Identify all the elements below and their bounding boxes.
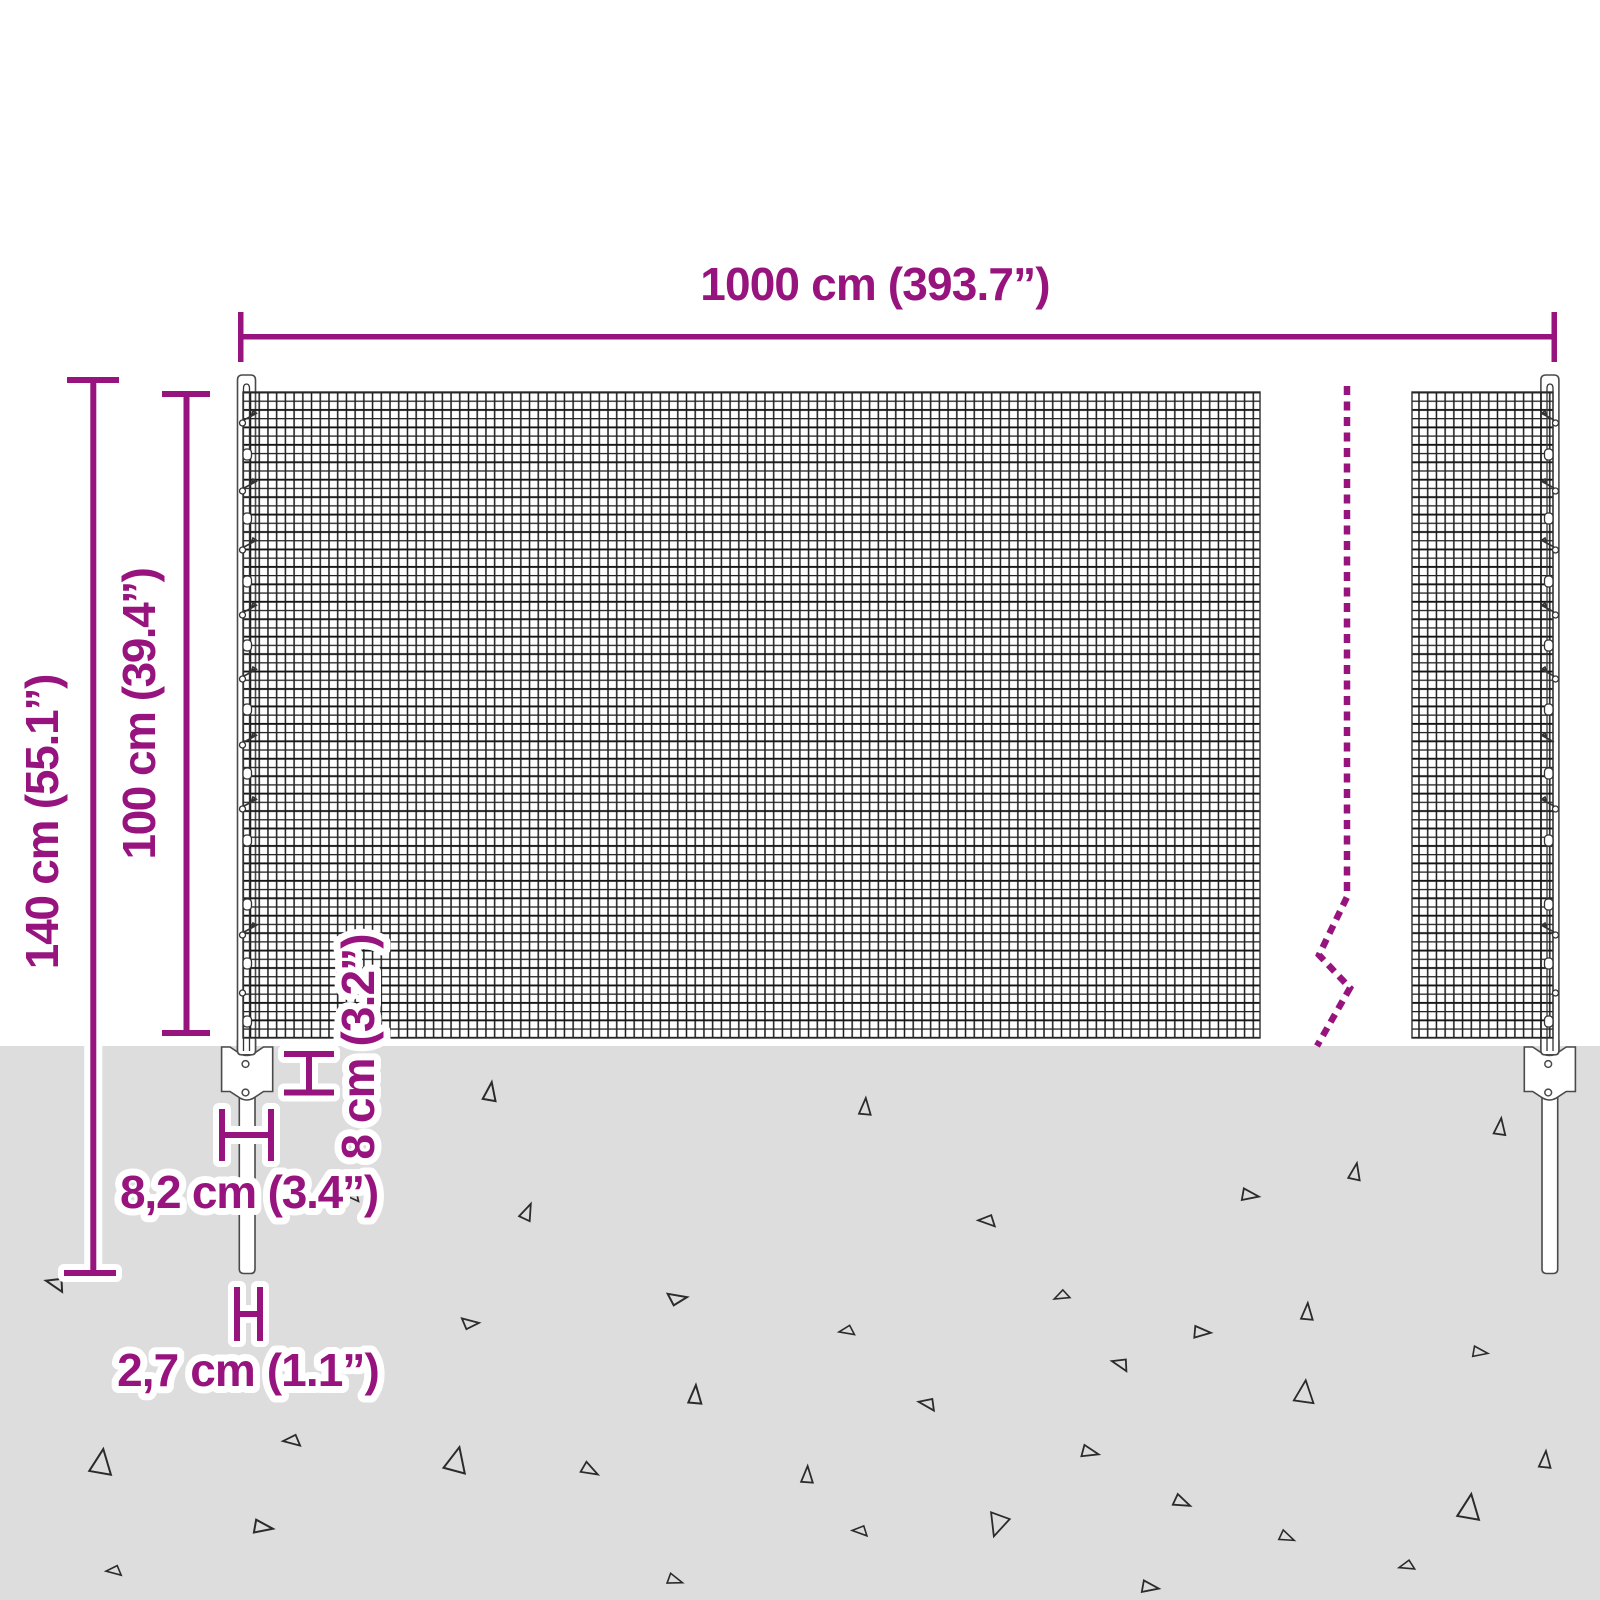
svg-text:8,2 cm (3.4”): 8,2 cm (3.4”) [120, 1166, 378, 1218]
svg-text:8 cm (3.2”): 8 cm (3.2”) [332, 934, 384, 1159]
svg-text:100 cm (39.4”): 100 cm (39.4”) [113, 568, 165, 859]
svg-text:140 cm (55.1”): 140 cm (55.1”) [16, 675, 68, 969]
svg-text:2,7 cm (1.1”): 2,7 cm (1.1”) [117, 1344, 379, 1396]
svg-text:1000 cm (393.7”): 1000 cm (393.7”) [700, 258, 1050, 310]
